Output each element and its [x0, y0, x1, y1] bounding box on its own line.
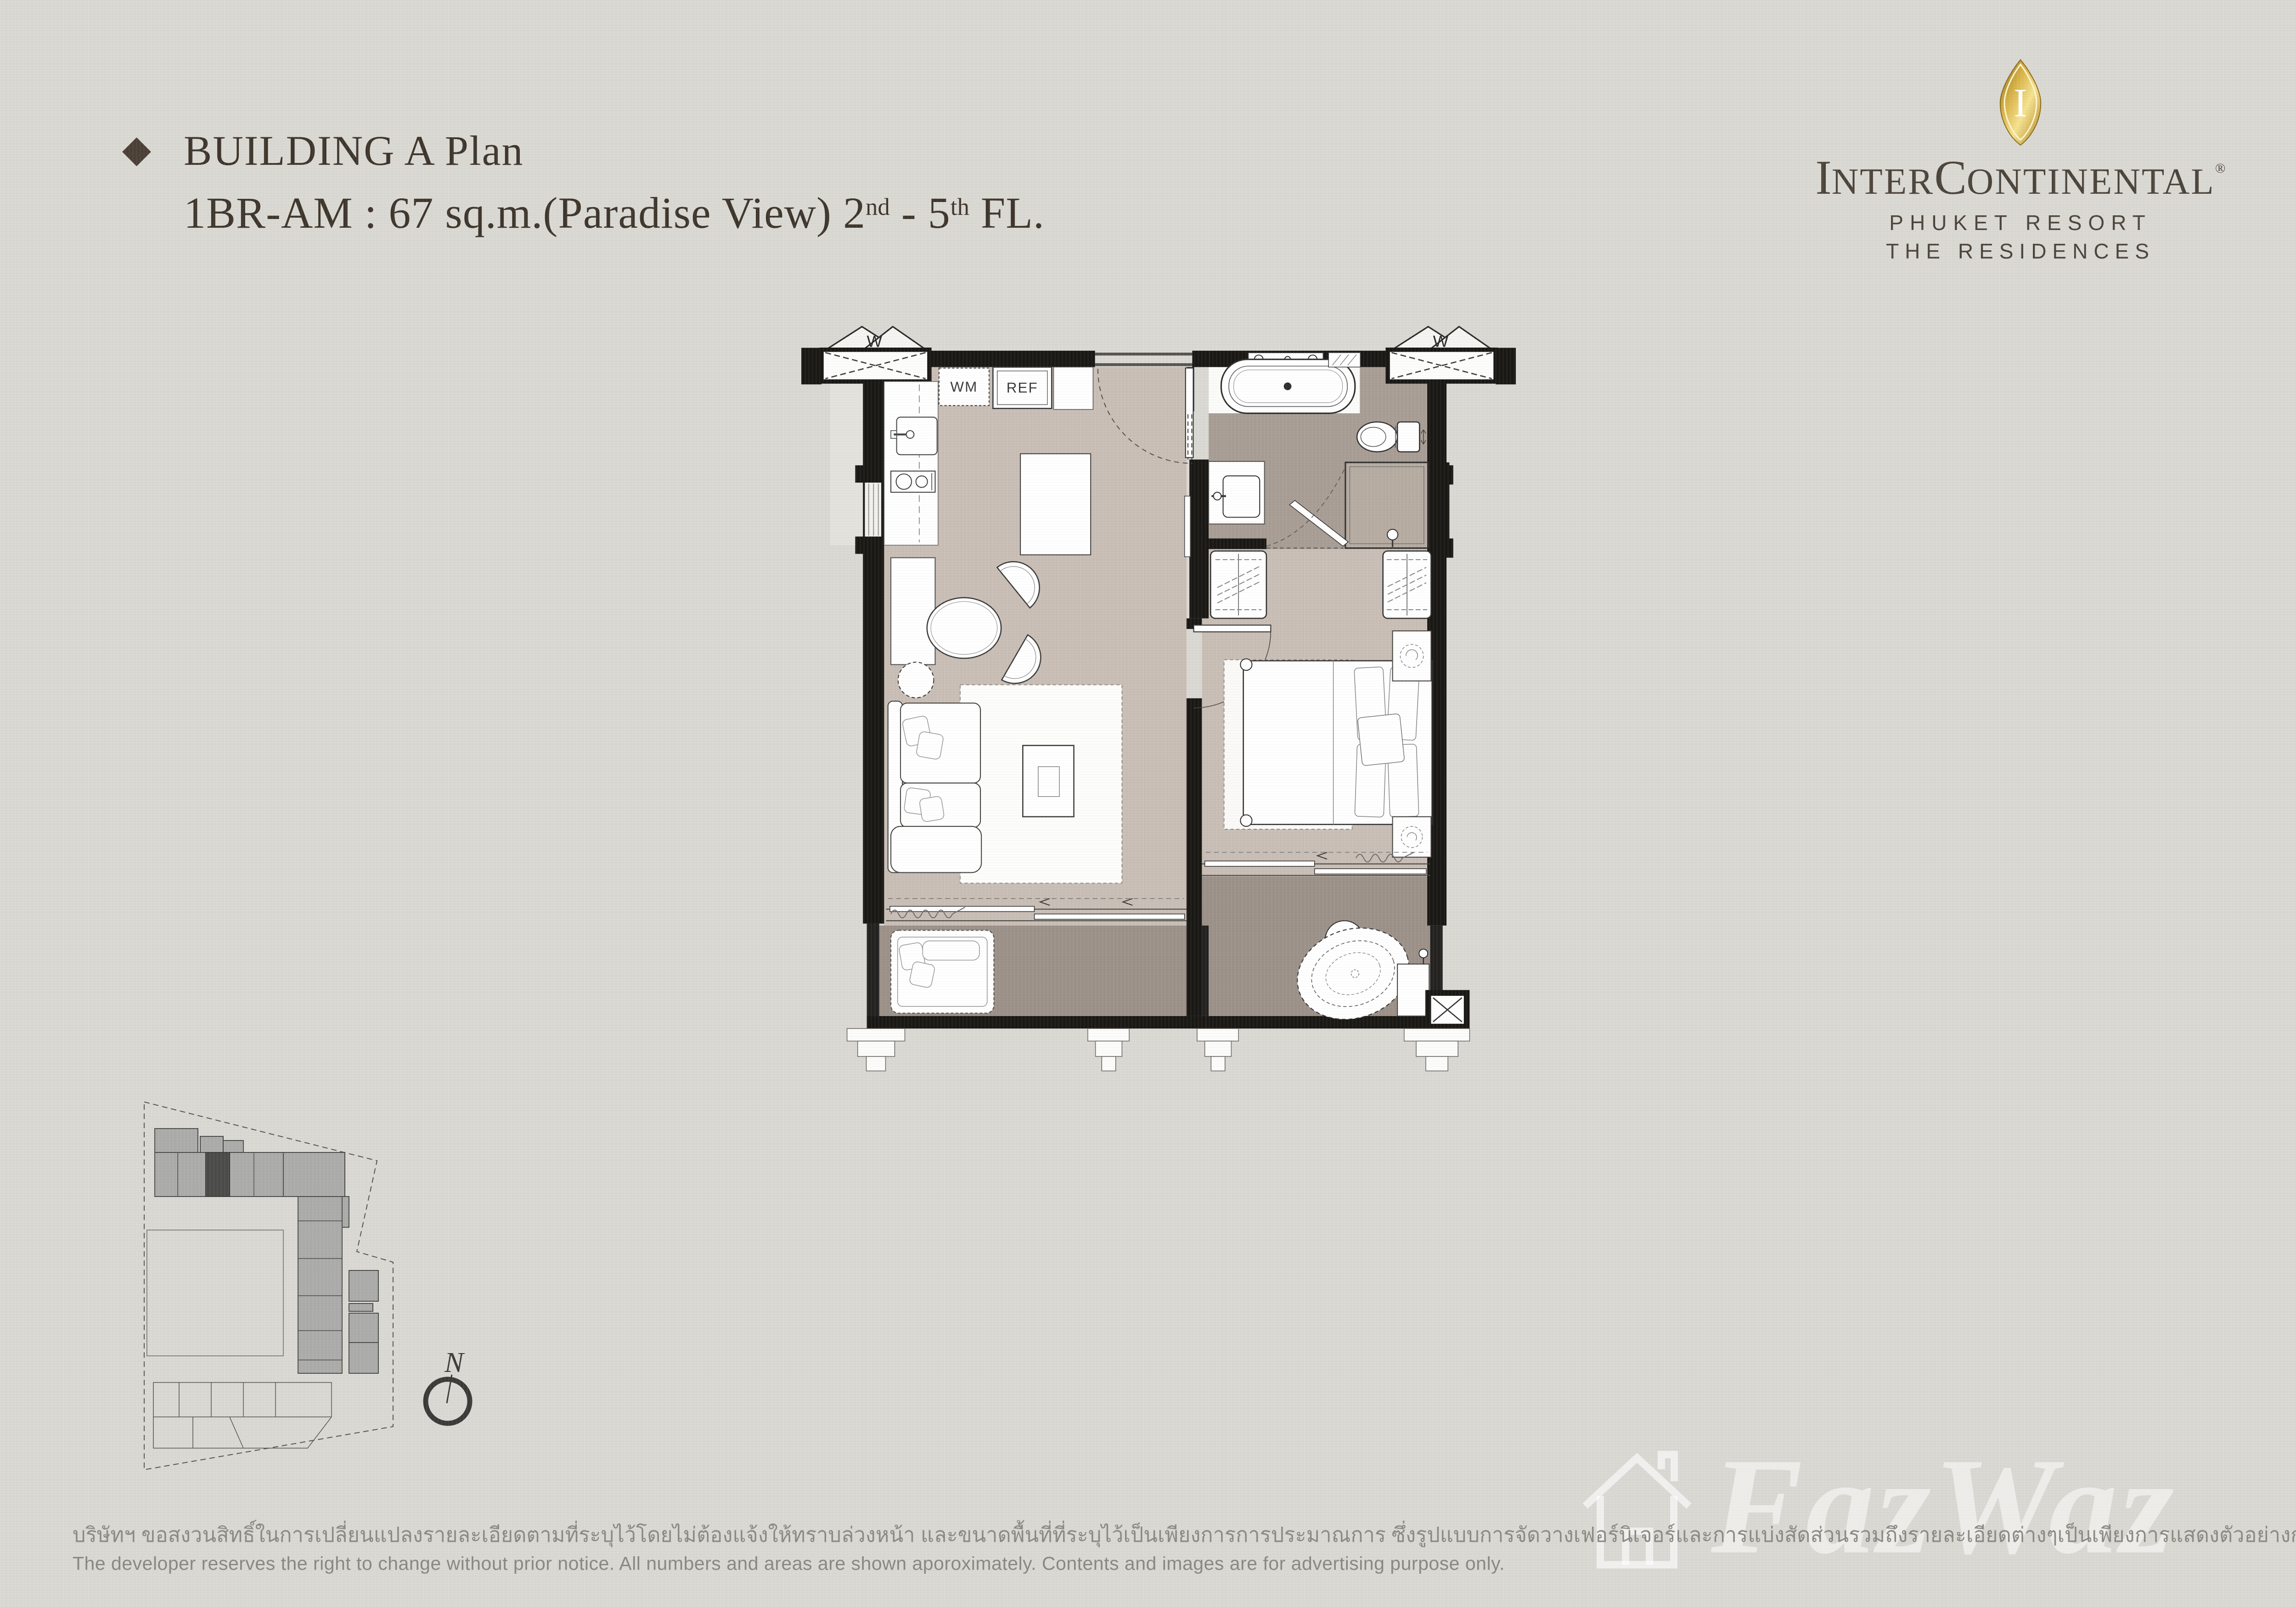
wm-label: WM: [950, 379, 978, 395]
ordinal-nd: nd: [866, 194, 890, 220]
unit-spec: 1BR-AM : 67 sq.m.(Paradise View) 2nd - 5…: [184, 191, 1045, 235]
north-compass-icon: N: [409, 1345, 491, 1437]
kitchen-sink: [891, 417, 937, 455]
lower-building-outline: [153, 1382, 332, 1448]
diamond-bullet-icon: ◆: [122, 130, 151, 168]
disclaimer-thai: บริษัทฯ ขอสงวนสิทธิ์ในการเปลี่ยนแปลงรายล…: [73, 1518, 2296, 1551]
brochure-page: ◆ BUILDING A Plan 1BR-AM : 67 sq.m.(Para…: [0, 0, 2296, 1607]
watermark: FazWaz: [1580, 1437, 2177, 1575]
ordinal-th: th: [951, 194, 969, 220]
shower-head-icon: [1387, 529, 1398, 540]
footings: [847, 1028, 1470, 1071]
wardrobe-right: [1383, 551, 1431, 618]
brand-c: C: [1934, 151, 1967, 204]
bed: [1240, 659, 1432, 826]
unit-spec-range: - 5: [890, 188, 951, 237]
planter-right: W: [1388, 326, 1516, 384]
kitchen-cabinet: [1053, 367, 1093, 409]
watermark-text: FazWaz: [1711, 1437, 2177, 1575]
coffee-table: [1023, 746, 1074, 817]
nightstand: [1393, 631, 1431, 681]
brand-ontinental: ONTINENTAL: [1967, 161, 2215, 202]
registered-mark: ®: [2215, 161, 2226, 176]
pool-outline: [147, 1230, 283, 1356]
living-room: [888, 685, 1122, 883]
planter-left: W: [801, 326, 929, 384]
brand-i: I: [1815, 151, 1831, 204]
pouf: [898, 662, 934, 698]
brand-subline-resort: PHUKET RESORT: [1889, 212, 2151, 233]
unit-spec-text: 1BR-AM : 67 sq.m.(Paradise View) 2: [184, 188, 866, 237]
bedroom: [1224, 631, 1432, 857]
brand-subline-residences: THE RESIDENCES: [1886, 241, 2155, 262]
terrace-daybed: [891, 930, 994, 1013]
nightstand: [1393, 817, 1431, 857]
window-left-wall: [865, 483, 881, 536]
ref-label: REF: [1007, 380, 1038, 396]
building-mass: [155, 1129, 378, 1373]
console-table: [891, 558, 935, 665]
highlighted-unit: [206, 1152, 230, 1197]
brand-nter: NTER: [1832, 161, 1934, 202]
kitchen-island: [1020, 454, 1091, 555]
toilet: [1357, 422, 1426, 452]
planter-left-label: W: [867, 332, 883, 350]
cooktop: [891, 471, 935, 492]
north-label: N: [444, 1347, 465, 1378]
site-key-plan: [138, 1096, 397, 1476]
watermark-house-icon: [1580, 1442, 1694, 1570]
shower-floor: [1345, 463, 1427, 548]
intercontinental-emblem-icon: I: [1991, 59, 2050, 146]
column: [1428, 993, 1467, 1027]
sofa: [888, 701, 981, 872]
page-title: BUILDING A Plan: [184, 129, 523, 172]
floor-plan: W W: [801, 323, 1545, 1315]
refrigerator: REF: [993, 367, 1052, 408]
unit-spec-fl: FL.: [969, 188, 1045, 237]
dining-table: [927, 598, 1001, 658]
disclaimer-english: The developer reserves the right to chan…: [73, 1553, 1505, 1574]
emblem-letter: I: [2014, 80, 2027, 125]
bathroom-door-panel: [1185, 496, 1191, 556]
exterior-ledge: [830, 382, 863, 545]
washing-machine: WM: [939, 368, 989, 406]
vanity-sink: [1209, 461, 1265, 524]
wardrobe-left: [1210, 551, 1266, 618]
brand-wordmark: INTERCONTINENTAL®: [1815, 153, 2225, 202]
hotel-logo: I INTERCONTINENTAL® PHUKET RESORT THE RE…: [1782, 59, 2259, 262]
planter-right-label: W: [1433, 332, 1449, 350]
